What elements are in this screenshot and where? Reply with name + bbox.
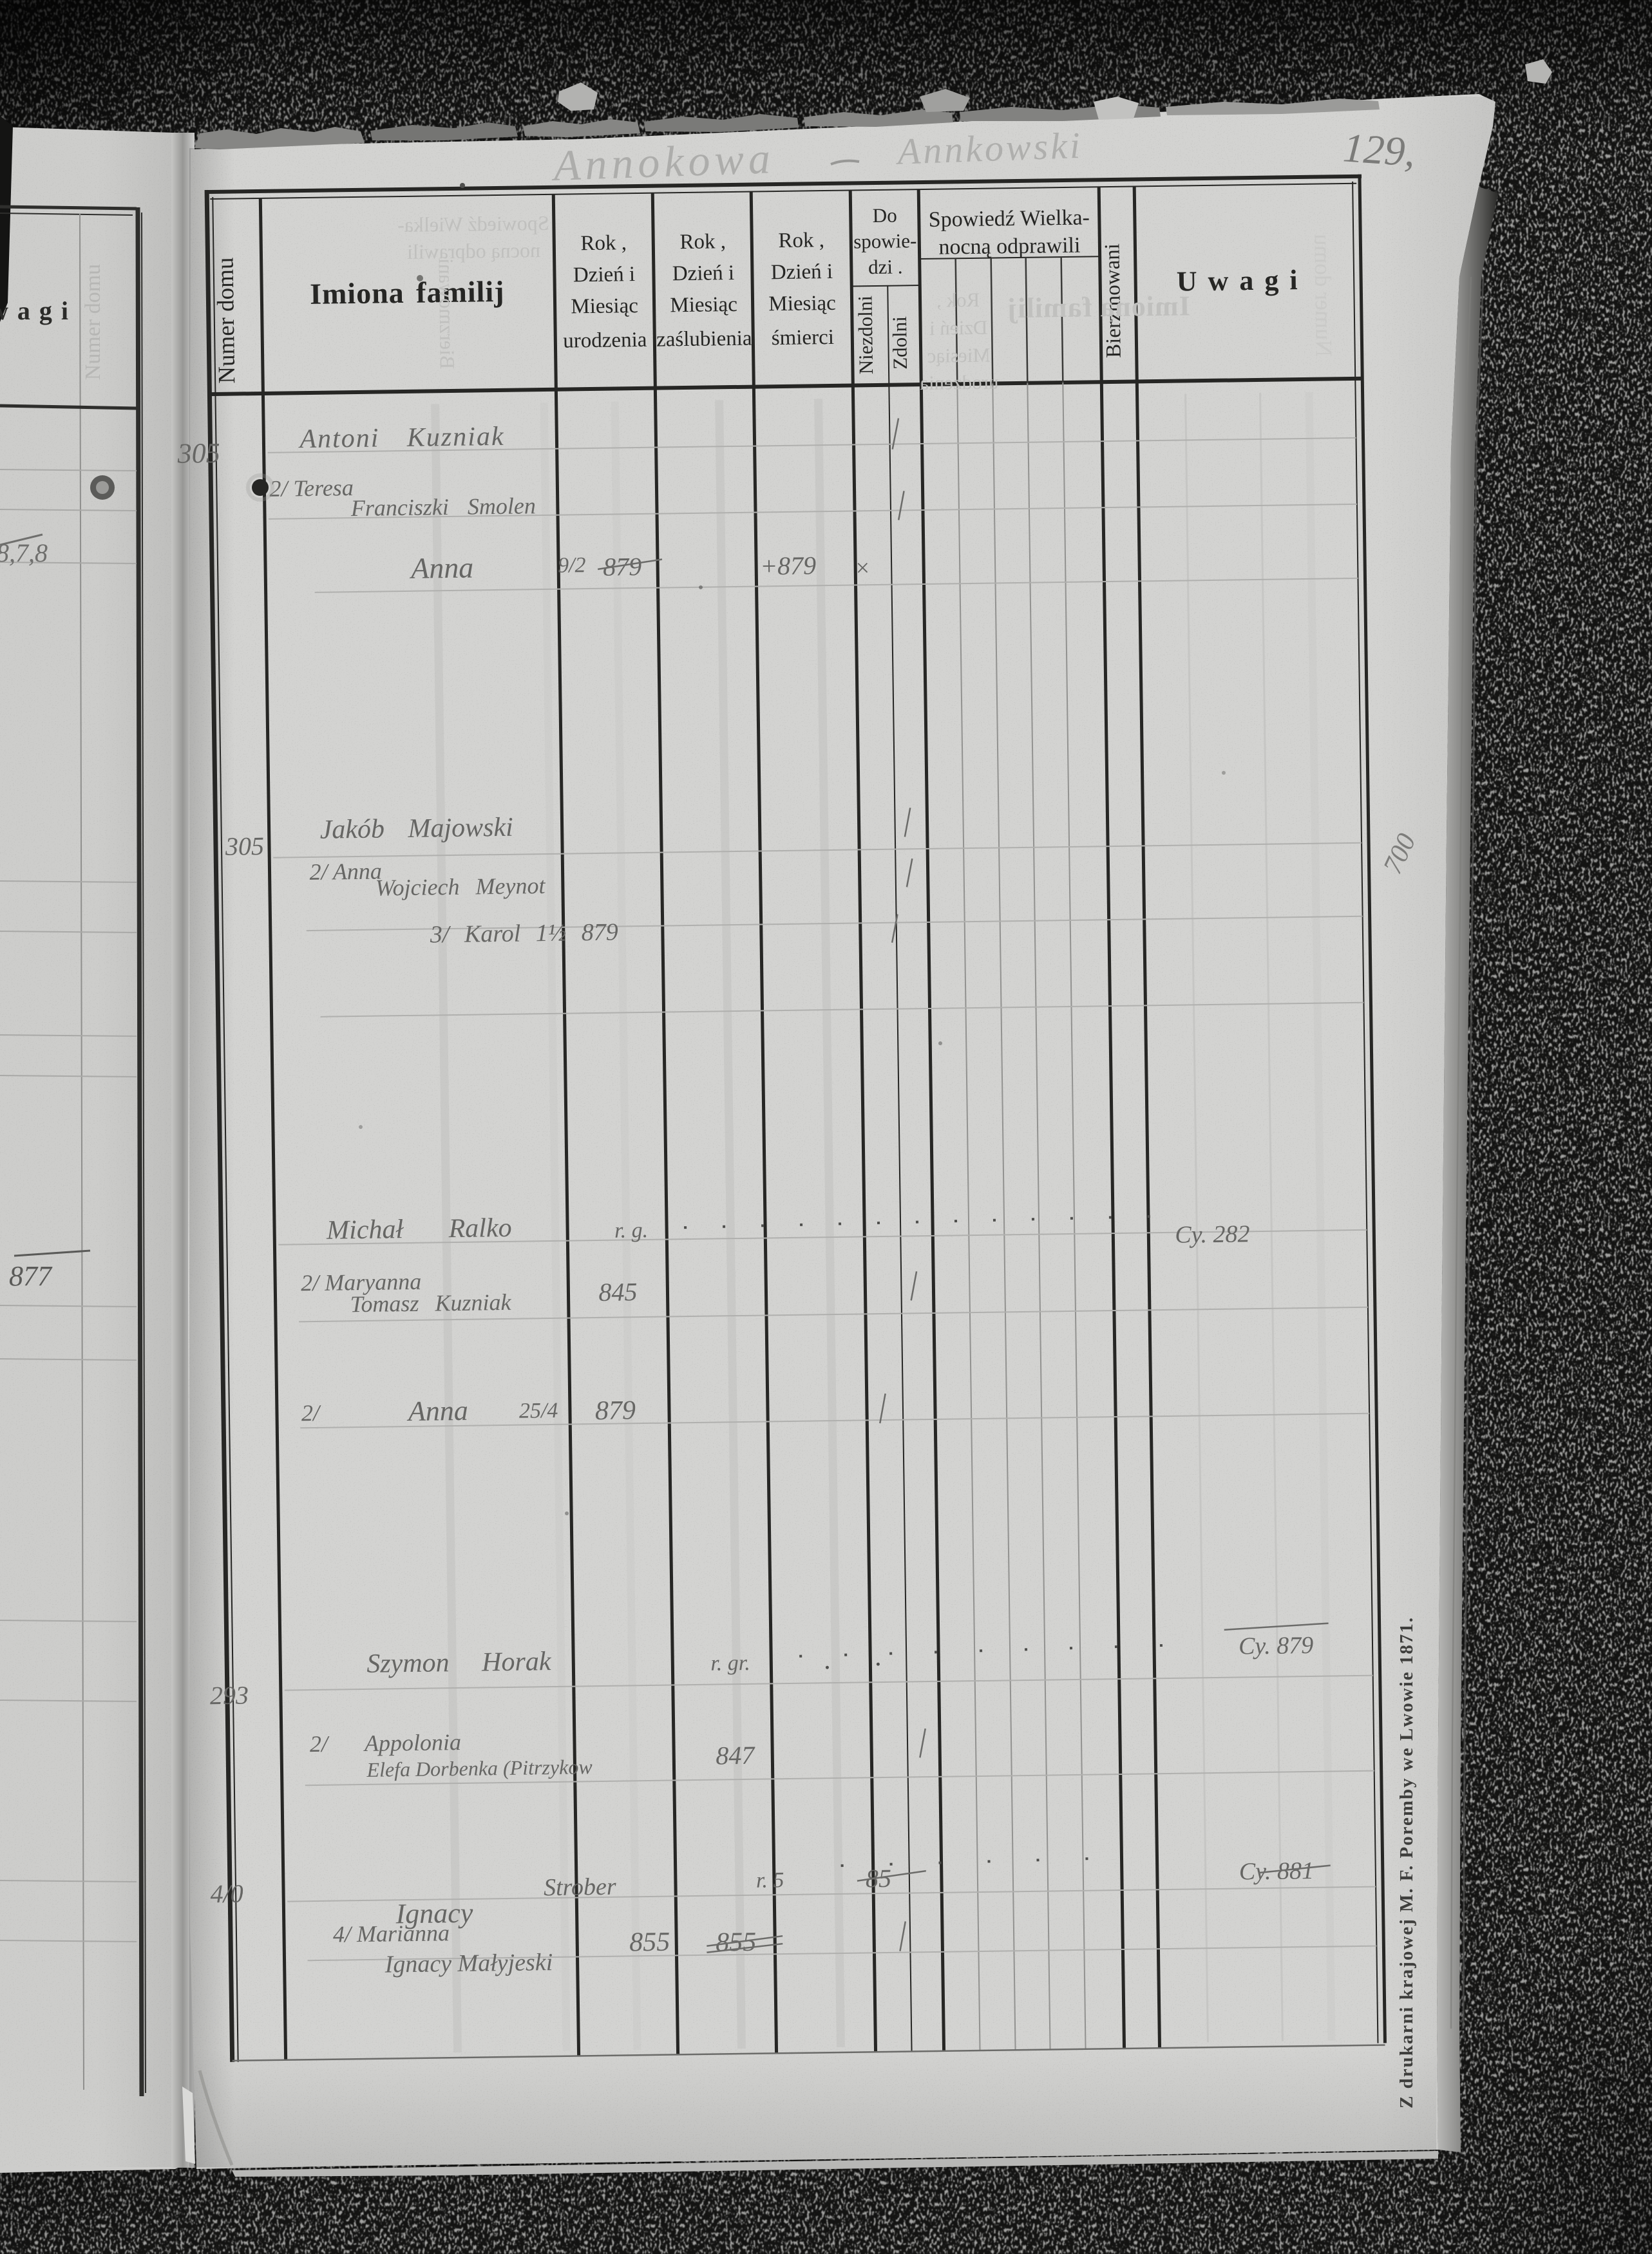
- svg-text:877: 877: [9, 1260, 53, 1292]
- svg-text:Rok ,: Rok ,: [778, 229, 824, 252]
- svg-text:Tomasz Kuzniak: Tomasz Kuzniak: [350, 1289, 511, 1317]
- svg-text:Miesiąc: Miesiąc: [670, 293, 737, 317]
- svg-text:Dzień i: Dzień i: [929, 316, 987, 339]
- svg-text:Elefa Dorbenka (Pitrzykow: Elefa Dorbenka (Pitrzykow: [366, 1755, 593, 1781]
- svg-text:845: 845: [598, 1277, 638, 1307]
- svg-text:Annkowski: Annkowski: [895, 124, 1083, 173]
- svg-text:Anna: Anna: [406, 1395, 469, 1427]
- svg-text:3/ Karol 1½ 879: 3/ Karol 1½ 879: [430, 919, 618, 949]
- svg-text:r. g.: r. g.: [614, 1218, 648, 1243]
- svg-text:śmierci: śmierci: [772, 326, 835, 350]
- svg-text:Niezdolni: Niezdolni: [853, 295, 877, 374]
- svg-text:Numer domu: Numer domu: [81, 264, 105, 380]
- svg-text:4/0: 4/0: [210, 1879, 243, 1909]
- svg-text:Spowiedź Wielka-: Spowiedź Wielka-: [397, 211, 549, 236]
- svg-text:Cy. 879: Cy. 879: [1239, 1632, 1314, 1660]
- svg-text:Ignacy Małyjeski: Ignacy Małyjeski: [384, 1949, 553, 1978]
- svg-text:Uwagi: Uwagi: [1176, 264, 1308, 298]
- svg-text:855: 855: [629, 1927, 670, 1958]
- svg-text:Z drukarni krajowej M. F. Pore: Z drukarni krajowej M. F. Poremby we Lwo…: [1396, 1616, 1417, 2108]
- svg-text:Miesiąc: Miesiąc: [927, 344, 991, 367]
- svg-text:Strober: Strober: [544, 1873, 616, 1902]
- svg-text:2/ Teresa: 2/ Teresa: [269, 475, 354, 502]
- svg-text:2/ Anna: 2/ Anna: [309, 858, 382, 885]
- svg-text:r. 5: r. 5: [756, 1868, 784, 1893]
- svg-text:Szymon Horak: Szymon Horak: [366, 1647, 552, 1679]
- svg-text:Dzień i: Dzień i: [672, 261, 735, 285]
- svg-text:Michał Ralko: Michał Ralko: [326, 1213, 512, 1245]
- svg-text:Miesiąc: Miesiąc: [768, 292, 836, 316]
- svg-text:urodzenia: urodzenia: [563, 328, 647, 353]
- svg-text:Dzień i: Dzień i: [771, 260, 833, 284]
- svg-text:wagi: wagi: [0, 296, 77, 325]
- svg-text:Spowiedź Wielka-: Spowiedź Wielka-: [929, 205, 1090, 231]
- svg-text:293: 293: [210, 1680, 249, 1710]
- svg-text:Jakób Majowski: Jakób Majowski: [319, 813, 513, 845]
- svg-text:Antoni Kuzniak: Antoni Kuzniak: [298, 422, 505, 454]
- svg-text:Rok ,: Rok ,: [936, 289, 980, 312]
- svg-text:2/: 2/: [310, 1731, 330, 1757]
- svg-text:Rok ,: Rok ,: [679, 230, 726, 254]
- svg-text:spowie-: spowie-: [853, 229, 917, 252]
- svg-text:Appolonia: Appolonia: [363, 1729, 462, 1756]
- svg-text:Imiona familij: Imiona familij: [310, 275, 505, 310]
- svg-text:Zdolni: Zdolni: [888, 316, 911, 370]
- svg-text:×: ×: [854, 554, 871, 582]
- svg-text:879: 879: [595, 1396, 636, 1426]
- svg-text:4/ Marianna: 4/ Marianna: [333, 1920, 450, 1947]
- svg-text:Wojciech Meynot: Wojciech Meynot: [375, 873, 546, 901]
- svg-text:Numer domu: Numer domu: [1309, 234, 1337, 357]
- svg-text:129,: 129,: [1342, 124, 1417, 175]
- svg-text:2/: 2/: [301, 1400, 322, 1426]
- svg-text:Rok ,: Rok ,: [580, 231, 627, 255]
- svg-text:Franciszki Smolen: Franciszki Smolen: [350, 493, 536, 521]
- svg-text:Cy. 282: Cy. 282: [1175, 1220, 1250, 1249]
- svg-text:r. gr.: r. gr.: [710, 1651, 750, 1676]
- svg-text:305: 305: [225, 831, 265, 861]
- svg-text:Annokowa: Annokowa: [550, 133, 775, 190]
- svg-text:879: 879: [603, 552, 642, 582]
- svg-text:Dzień i: Dzień i: [573, 263, 636, 287]
- svg-text:Bierzmowani: Bierzmowani: [435, 258, 459, 370]
- svg-text:dzi .: dzi .: [868, 255, 903, 278]
- svg-text:Miesiąc: Miesiąc: [571, 294, 638, 318]
- svg-text:Anna: Anna: [409, 551, 474, 585]
- svg-text:Imiona familij: Imiona familij: [1007, 290, 1190, 324]
- svg-text:Numer domu: Numer domu: [213, 257, 241, 384]
- svg-text:+879: +879: [760, 551, 817, 580]
- svg-text:305: 305: [176, 437, 220, 469]
- svg-text:nocną odprawili: nocną odprawili: [938, 234, 1080, 260]
- svg-text:zaślubienia: zaślubienia: [656, 327, 752, 352]
- svg-text:urodzenia: urodzenia: [920, 370, 999, 394]
- svg-text:847: 847: [716, 1741, 756, 1770]
- svg-text:25/4: 25/4: [519, 1399, 558, 1423]
- svg-text:9/2: 9/2: [558, 553, 586, 578]
- svg-text:Do: Do: [873, 204, 897, 227]
- svg-text:nocną odprawili: nocną odprawili: [407, 238, 541, 263]
